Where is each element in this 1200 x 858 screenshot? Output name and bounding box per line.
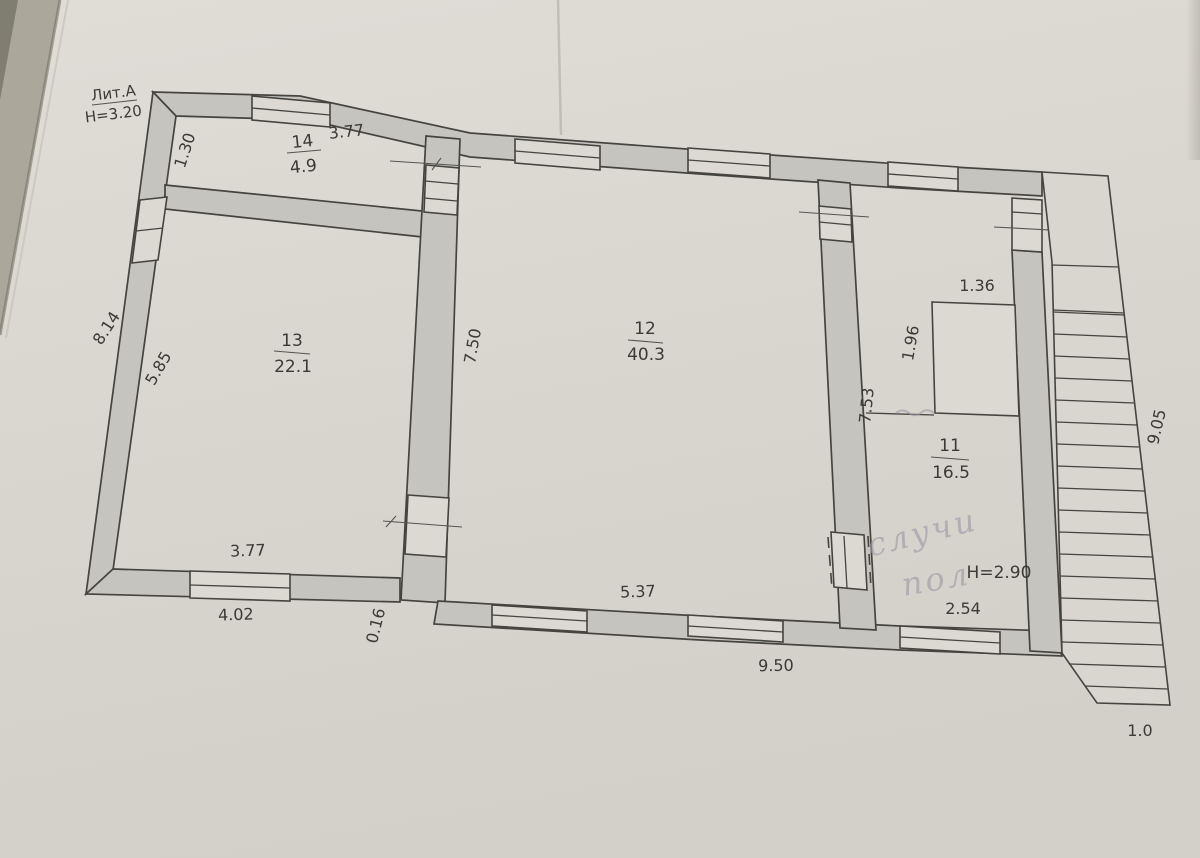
dim-stair-width: 1.0 (1127, 721, 1152, 740)
dim-bottom-outer: 9.50 (758, 656, 794, 676)
room11-shaft (932, 302, 1019, 416)
photo-of-floor-plan: Лит.А Н=3.20 14 3.77 4.9 13 22.1 12 40.3… (0, 0, 1200, 858)
dim-room12-bottom: 5.37 (620, 581, 656, 601)
dim-room11-bottom: 2.54 (945, 599, 981, 618)
floor-plan-photo: Лит.А Н=3.20 14 3.77 4.9 13 22.1 12 40.3… (0, 0, 1200, 858)
dim-shaft-width: 1.36 (959, 276, 995, 295)
room-14-area: 4.9 (289, 156, 318, 179)
room-12-area: 40.3 (627, 345, 665, 365)
room-11-number: 11 (939, 436, 961, 456)
dim-bottom-left-outer: 4.02 (218, 604, 254, 624)
door-opening-rooms12-11 (831, 532, 867, 590)
room-14-width-dim: 3.77 (328, 120, 365, 143)
window-mid-wall (424, 165, 459, 215)
window-right-wall (1012, 198, 1042, 252)
room-14-number: 14 (291, 131, 315, 153)
dim-room11-left: 7.53 (855, 387, 878, 424)
room-13-number: 13 (281, 331, 303, 351)
room-12-number: 12 (634, 319, 656, 339)
dim-room13-bottom: 3.77 (230, 540, 266, 560)
room-11-area: 16.5 (932, 463, 970, 483)
paper-right-edge-shadow (1186, 0, 1200, 160)
secondary-height-label: Н=2.90 (967, 563, 1032, 583)
room-13-area: 22.1 (274, 357, 312, 377)
